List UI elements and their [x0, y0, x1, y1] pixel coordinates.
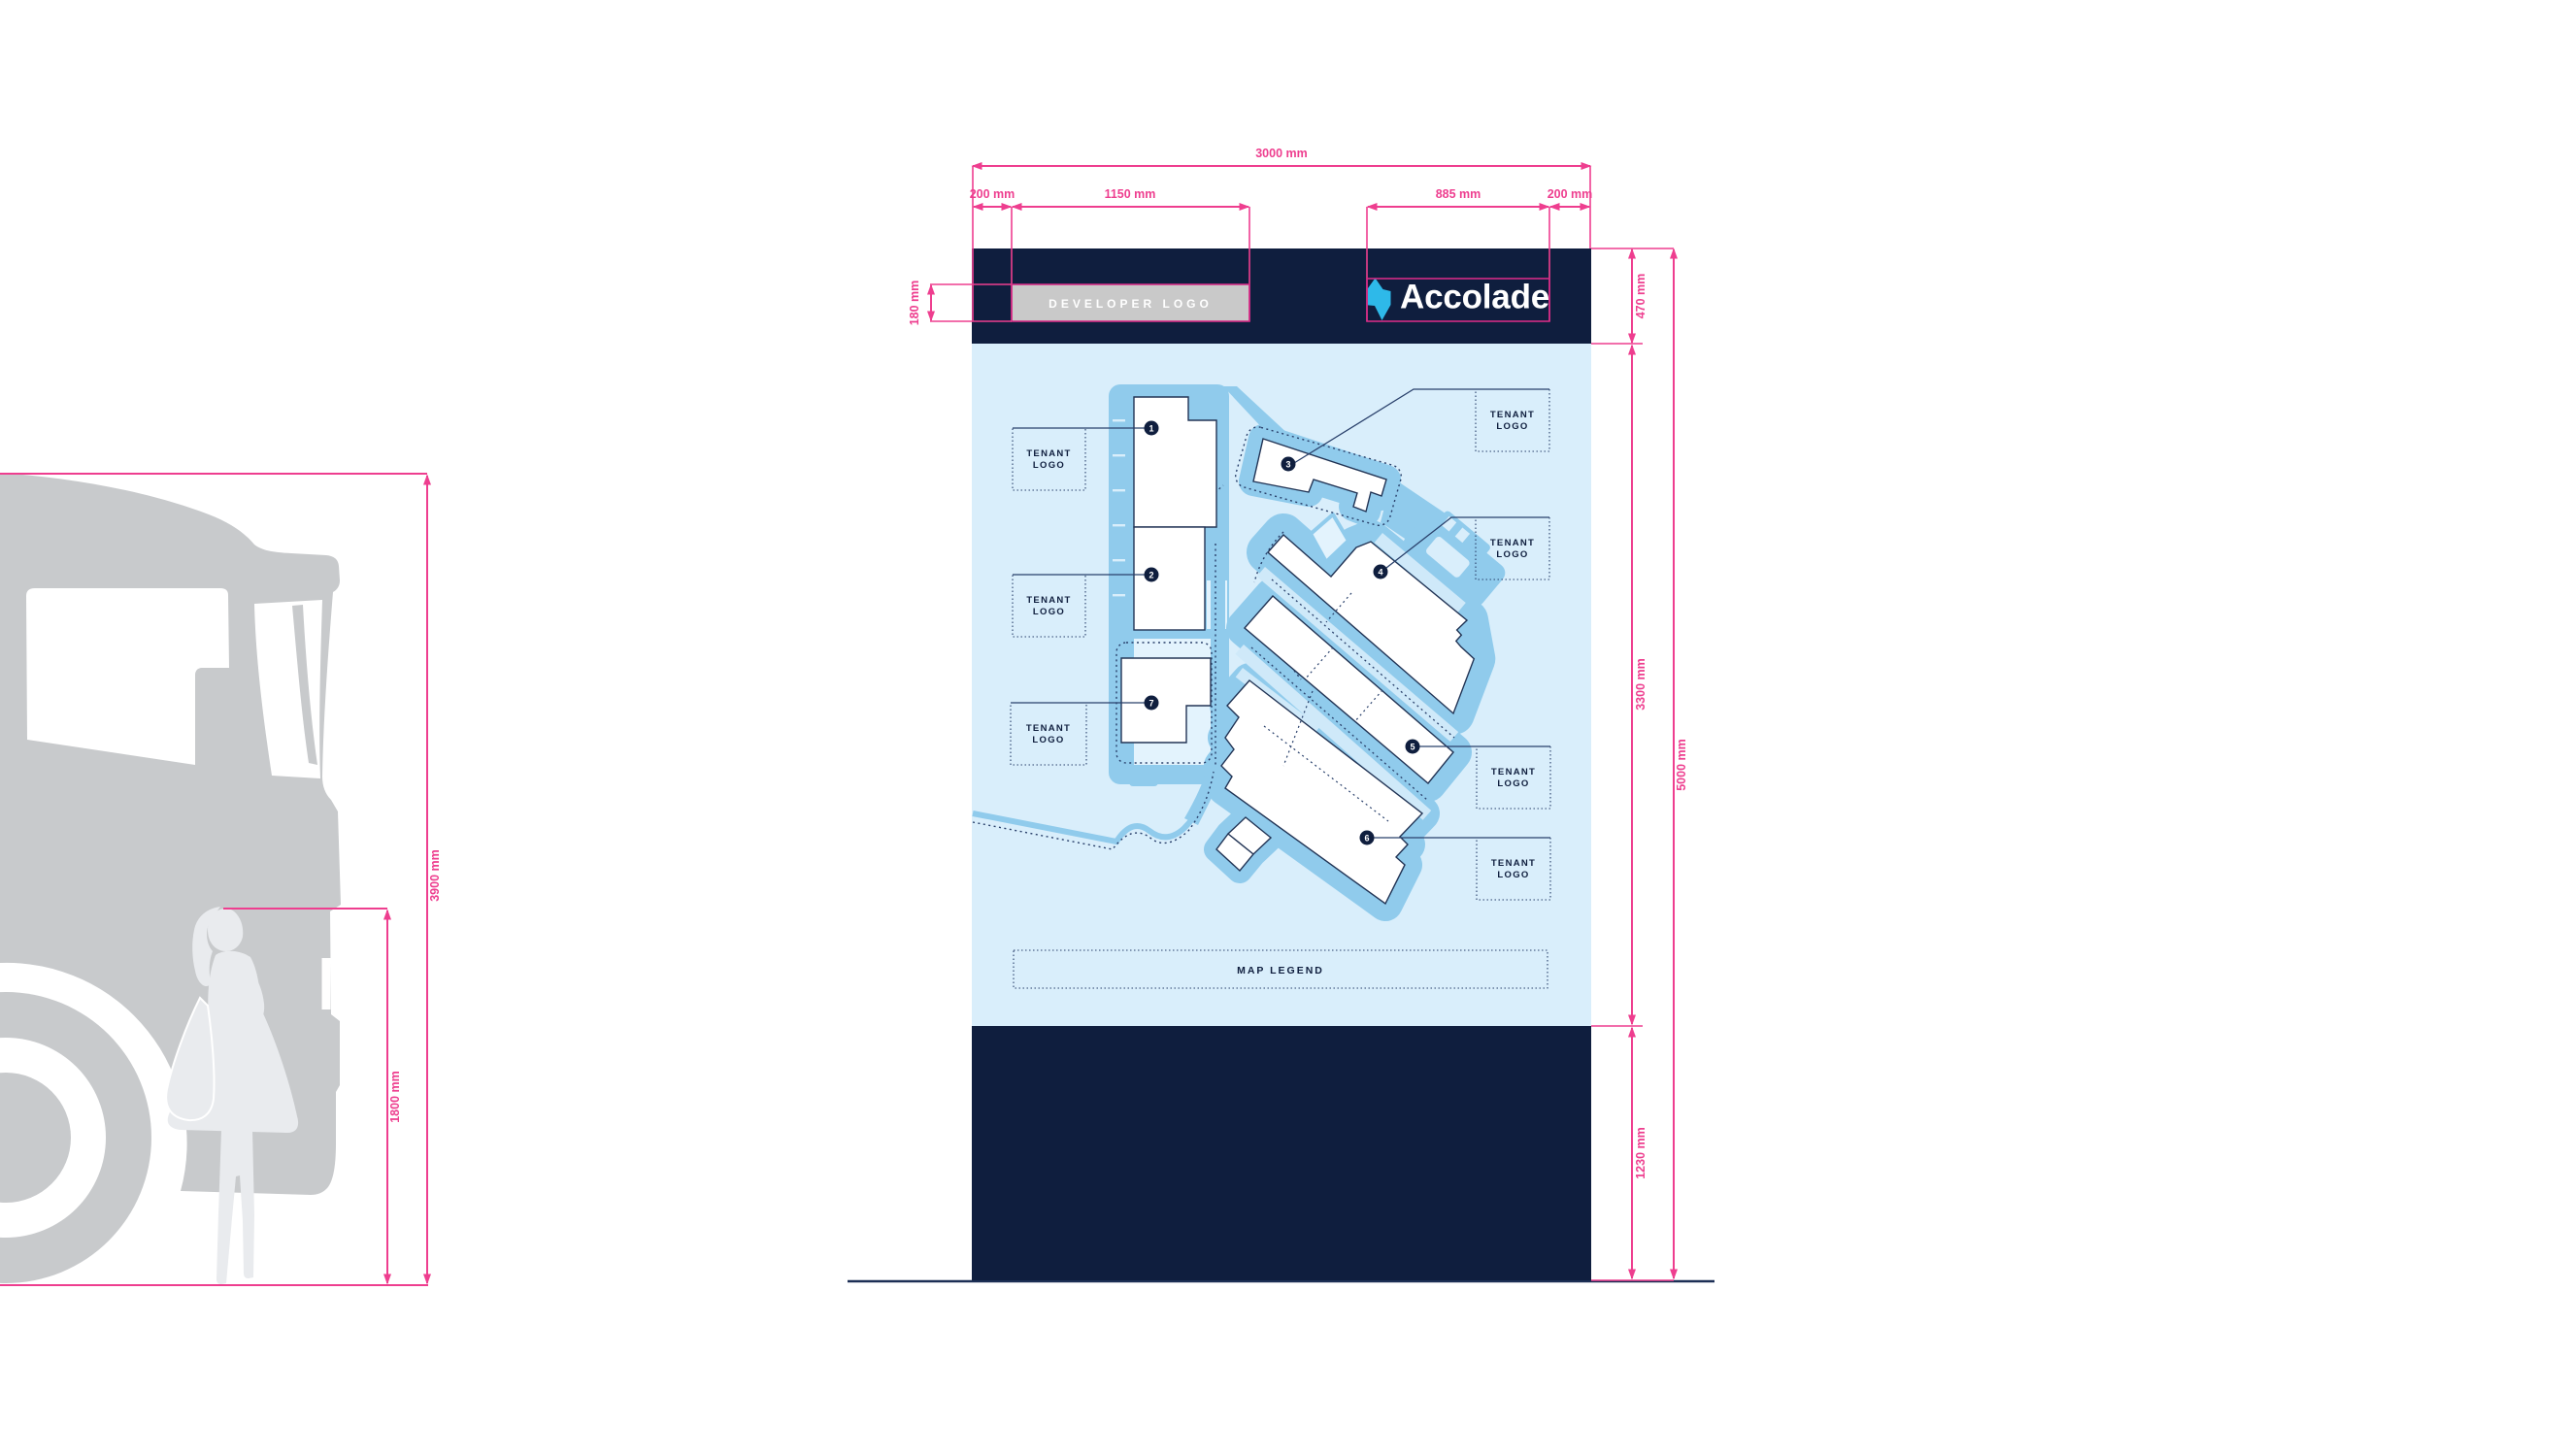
svg-text:4: 4: [1378, 568, 1382, 578]
svg-text:1: 1: [1148, 424, 1153, 434]
svg-text:TENANT: TENANT: [1026, 723, 1071, 734]
svg-text:LOGO: LOGO: [1496, 421, 1528, 432]
svg-text:TENANT: TENANT: [1026, 595, 1071, 606]
svg-text:2: 2: [1148, 571, 1153, 580]
svg-text:7: 7: [1148, 699, 1153, 709]
svg-text:1230 mm: 1230 mm: [1634, 1127, 1648, 1179]
svg-text:Accolade: Accolade: [1400, 279, 1549, 316]
svg-text:LOGO: LOGO: [1033, 607, 1065, 617]
svg-text:5: 5: [1410, 743, 1415, 752]
svg-text:3900 mm: 3900 mm: [428, 849, 442, 902]
svg-text:3300 mm: 3300 mm: [1634, 658, 1648, 711]
svg-text:1800 mm: 1800 mm: [388, 1071, 402, 1123]
svg-text:3000 mm: 3000 mm: [1255, 147, 1308, 160]
svg-text:470 mm: 470 mm: [1634, 274, 1648, 319]
svg-text:200 mm: 200 mm: [970, 187, 1015, 201]
svg-text:MAP LEGEND: MAP LEGEND: [1237, 965, 1324, 976]
svg-text:5000 mm: 5000 mm: [1675, 739, 1688, 791]
svg-text:TENANT: TENANT: [1491, 858, 1536, 869]
svg-text:TENANT: TENANT: [1491, 767, 1536, 778]
svg-text:LOGO: LOGO: [1497, 870, 1529, 880]
svg-text:LOGO: LOGO: [1032, 735, 1064, 745]
svg-text:LOGO: LOGO: [1496, 549, 1528, 560]
svg-text:DEVELOPER LOGO: DEVELOPER LOGO: [1048, 297, 1213, 311]
svg-text:180 mm: 180 mm: [908, 281, 921, 326]
svg-text:TENANT: TENANT: [1490, 538, 1535, 548]
svg-text:3: 3: [1285, 460, 1290, 470]
svg-text:TENANT: TENANT: [1026, 448, 1071, 459]
svg-text:200 mm: 200 mm: [1548, 187, 1593, 201]
svg-text:6: 6: [1364, 834, 1369, 844]
svg-text:LOGO: LOGO: [1497, 778, 1529, 789]
svg-text:885 mm: 885 mm: [1436, 187, 1481, 201]
svg-text:1150 mm: 1150 mm: [1105, 187, 1156, 201]
svg-text:LOGO: LOGO: [1033, 460, 1065, 471]
svg-text:TENANT: TENANT: [1490, 410, 1535, 420]
